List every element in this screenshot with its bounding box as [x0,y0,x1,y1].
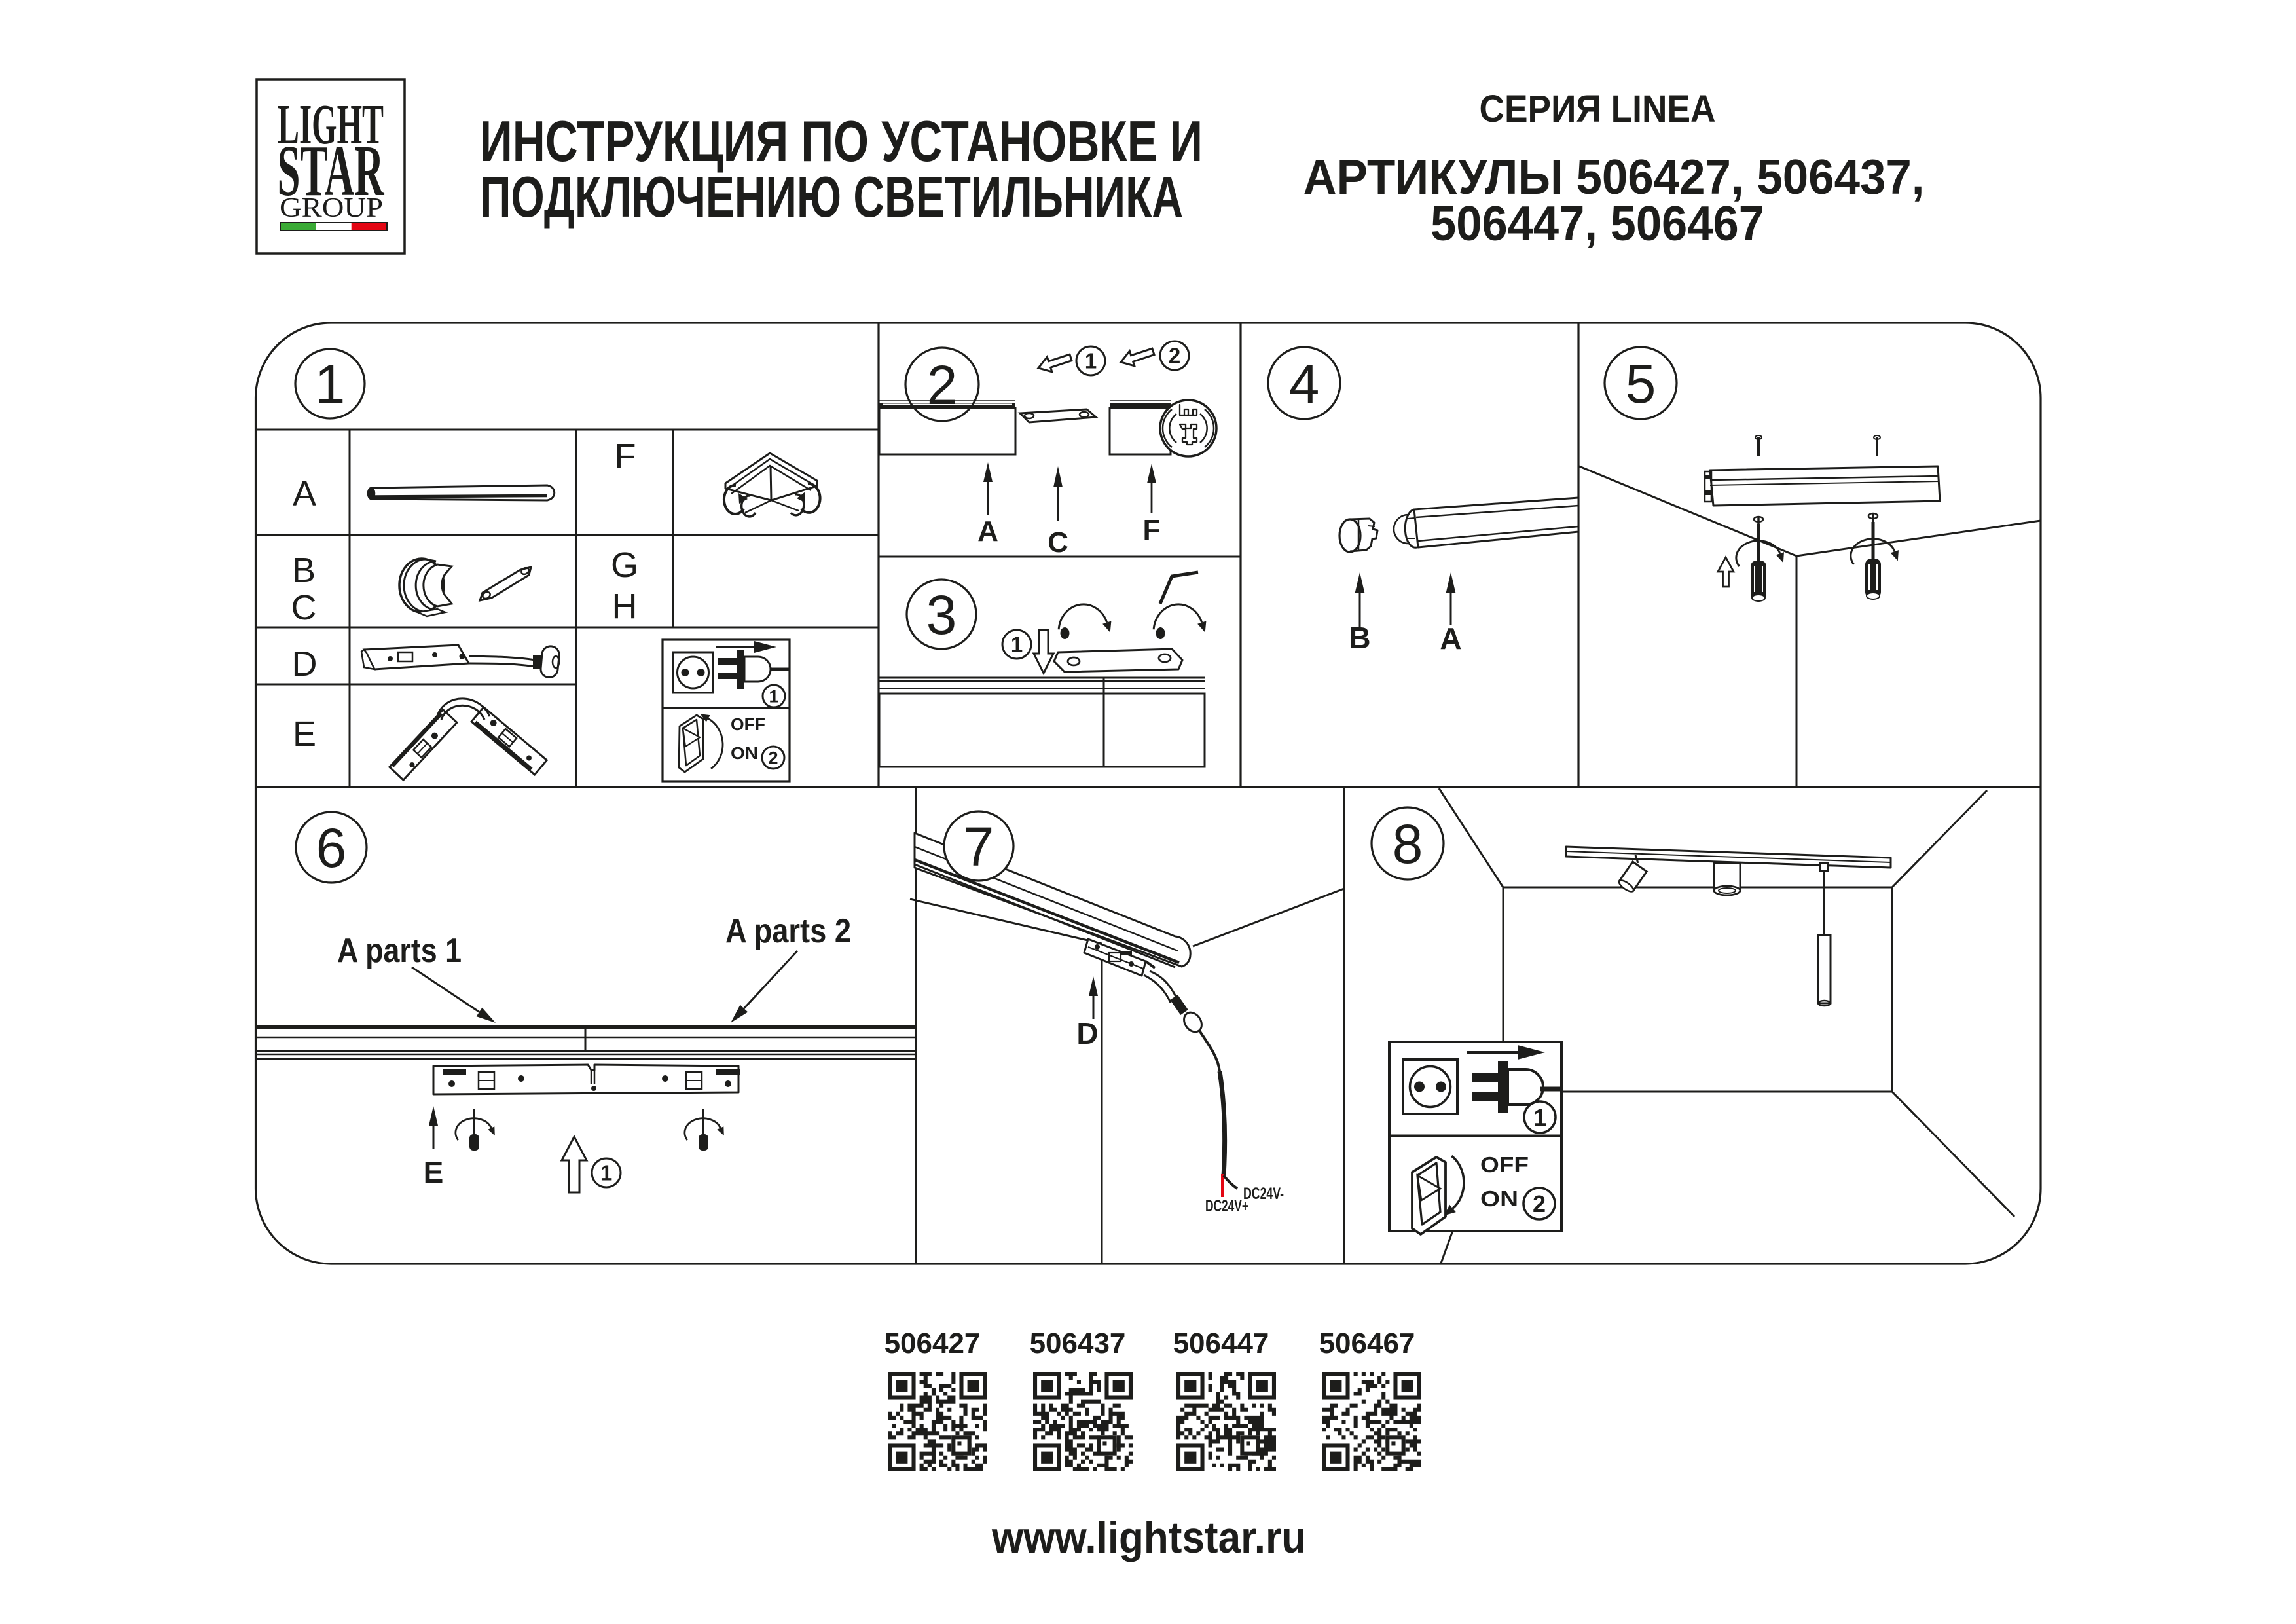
svg-text:E: E [424,1155,444,1189]
svg-text:A: A [1440,621,1461,655]
svg-text:C: C [1048,526,1068,559]
svg-text:506437: 506437 [1030,1327,1126,1359]
svg-text:1: 1 [769,687,778,707]
svg-text:1: 1 [1085,349,1097,373]
svg-text:7: 7 [964,816,994,877]
svg-text:506447, 506467: 506447, 506467 [1430,196,1764,251]
svg-text:F: F [1143,514,1161,546]
svg-text:2: 2 [1169,344,1180,368]
svg-text:B: B [1349,621,1370,655]
svg-text:C: C [291,588,317,627]
svg-text:F: F [615,437,636,476]
svg-text:2: 2 [768,748,778,768]
svg-text:6: 6 [316,817,347,879]
svg-text:1: 1 [1011,633,1023,657]
svg-text:A: A [293,474,316,513]
svg-text:1: 1 [315,354,346,415]
svg-text:A: A [977,515,998,547]
svg-text:ON: ON [1480,1187,1518,1211]
svg-text:A parts 2: A parts 2 [725,912,851,950]
svg-text:D: D [1076,1016,1098,1050]
svg-text:5: 5 [1626,353,1656,415]
svg-text:ON: ON [731,743,758,763]
svg-text:E: E [293,714,316,754]
svg-text:2: 2 [927,354,958,416]
svg-text:ПОДКЛЮЧЕНИЮ СВЕТИЛЬНИКА: ПОДКЛЮЧЕНИЮ СВЕТИЛЬНИКА [480,164,1183,229]
svg-text:506467: 506467 [1319,1327,1415,1359]
svg-text:506427: 506427 [884,1327,981,1359]
svg-text:H: H [612,587,638,626]
svg-text:A parts 1: A parts 1 [337,932,462,970]
svg-text:8: 8 [1393,813,1423,875]
svg-text:1: 1 [600,1161,612,1185]
svg-text:B: B [292,551,316,590]
svg-text:2: 2 [1533,1190,1546,1217]
svg-text:4: 4 [1289,353,1320,415]
svg-text:DC24V+: DC24V+ [1205,1197,1248,1215]
svg-text:GROUP: GROUP [280,193,383,223]
svg-text:1: 1 [1533,1104,1546,1131]
svg-text:3: 3 [926,584,957,646]
svg-text:G: G [611,545,638,585]
svg-text:OFF: OFF [1480,1153,1529,1177]
svg-text:OFF: OFF [731,714,765,734]
svg-text:СЕРИЯ LINEA: СЕРИЯ LINEA [1480,88,1716,130]
svg-text:D: D [292,644,318,684]
svg-text:506447: 506447 [1173,1327,1269,1359]
svg-text:www.lightstar.ru: www.lightstar.ru [991,1513,1306,1562]
svg-text:DC24V-: DC24V- [1243,1185,1284,1203]
